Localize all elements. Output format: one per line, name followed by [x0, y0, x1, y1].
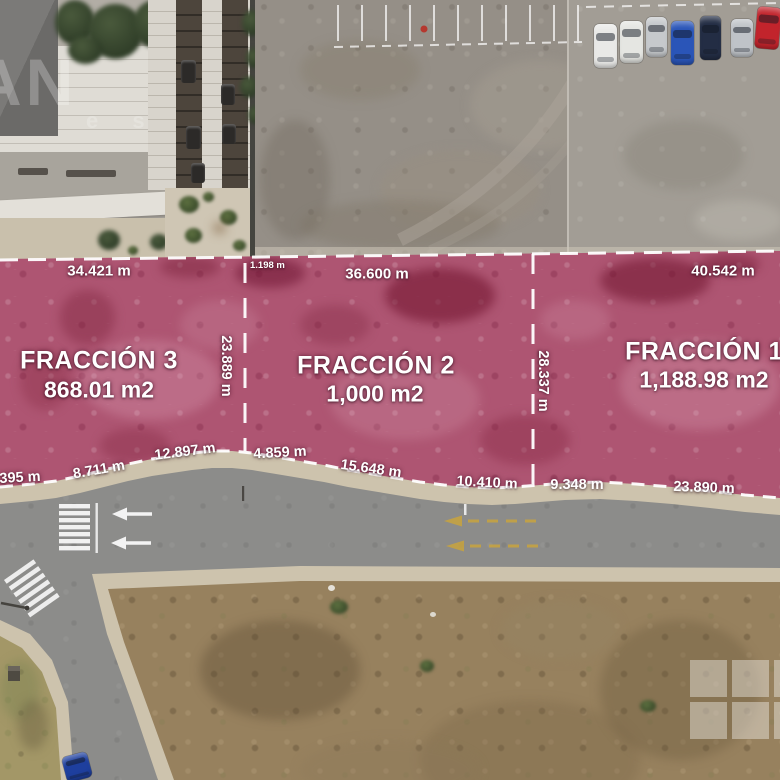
measure-front-f2: 36.600 m	[345, 266, 408, 283]
measure-bottom-7: 23.890 m	[673, 479, 735, 497]
measure-front-f3: 34.421 m	[67, 263, 130, 280]
annotation-layer: FRACCIÓN 3 868.01 m2 FRACCIÓN 2 1,000 m2…	[0, 0, 780, 780]
measure-bottom-4: 15.648 m	[340, 457, 403, 481]
measure-divider-1-top: 1.198 m	[250, 260, 285, 271]
measure-bottom-2: 12.897 m	[154, 440, 217, 463]
measure-bottom-3: 4.859 m	[253, 444, 307, 463]
measure-divider-1: 23.889 m	[218, 335, 234, 396]
aerial-photo-canvas: FRACCIÓN 3 868.01 m2 FRACCIÓN 2 1,000 m2…	[0, 0, 780, 780]
measure-bottom-6: 9.348 m	[550, 477, 603, 493]
parcel-2-label: FRACCIÓN 2	[297, 352, 455, 381]
measure-front-f1: 40.542 m	[691, 263, 754, 280]
parcel-2-area: 1,000 m2	[326, 381, 423, 408]
measure-left-edge: .395 m	[0, 469, 41, 487]
parcel-1-area: 1,188.98 m2	[639, 367, 768, 394]
measure-bottom-1: 8.711 m	[72, 458, 126, 483]
parcel-3-label: FRACCIÓN 3	[20, 347, 178, 376]
parcel-3-area: 868.01 m2	[44, 377, 154, 404]
parcel-1-label: FRACCIÓN 1	[625, 338, 780, 367]
measure-bottom-5: 10.410 m	[456, 473, 518, 492]
measure-divider-2: 28.337 m	[535, 350, 551, 411]
